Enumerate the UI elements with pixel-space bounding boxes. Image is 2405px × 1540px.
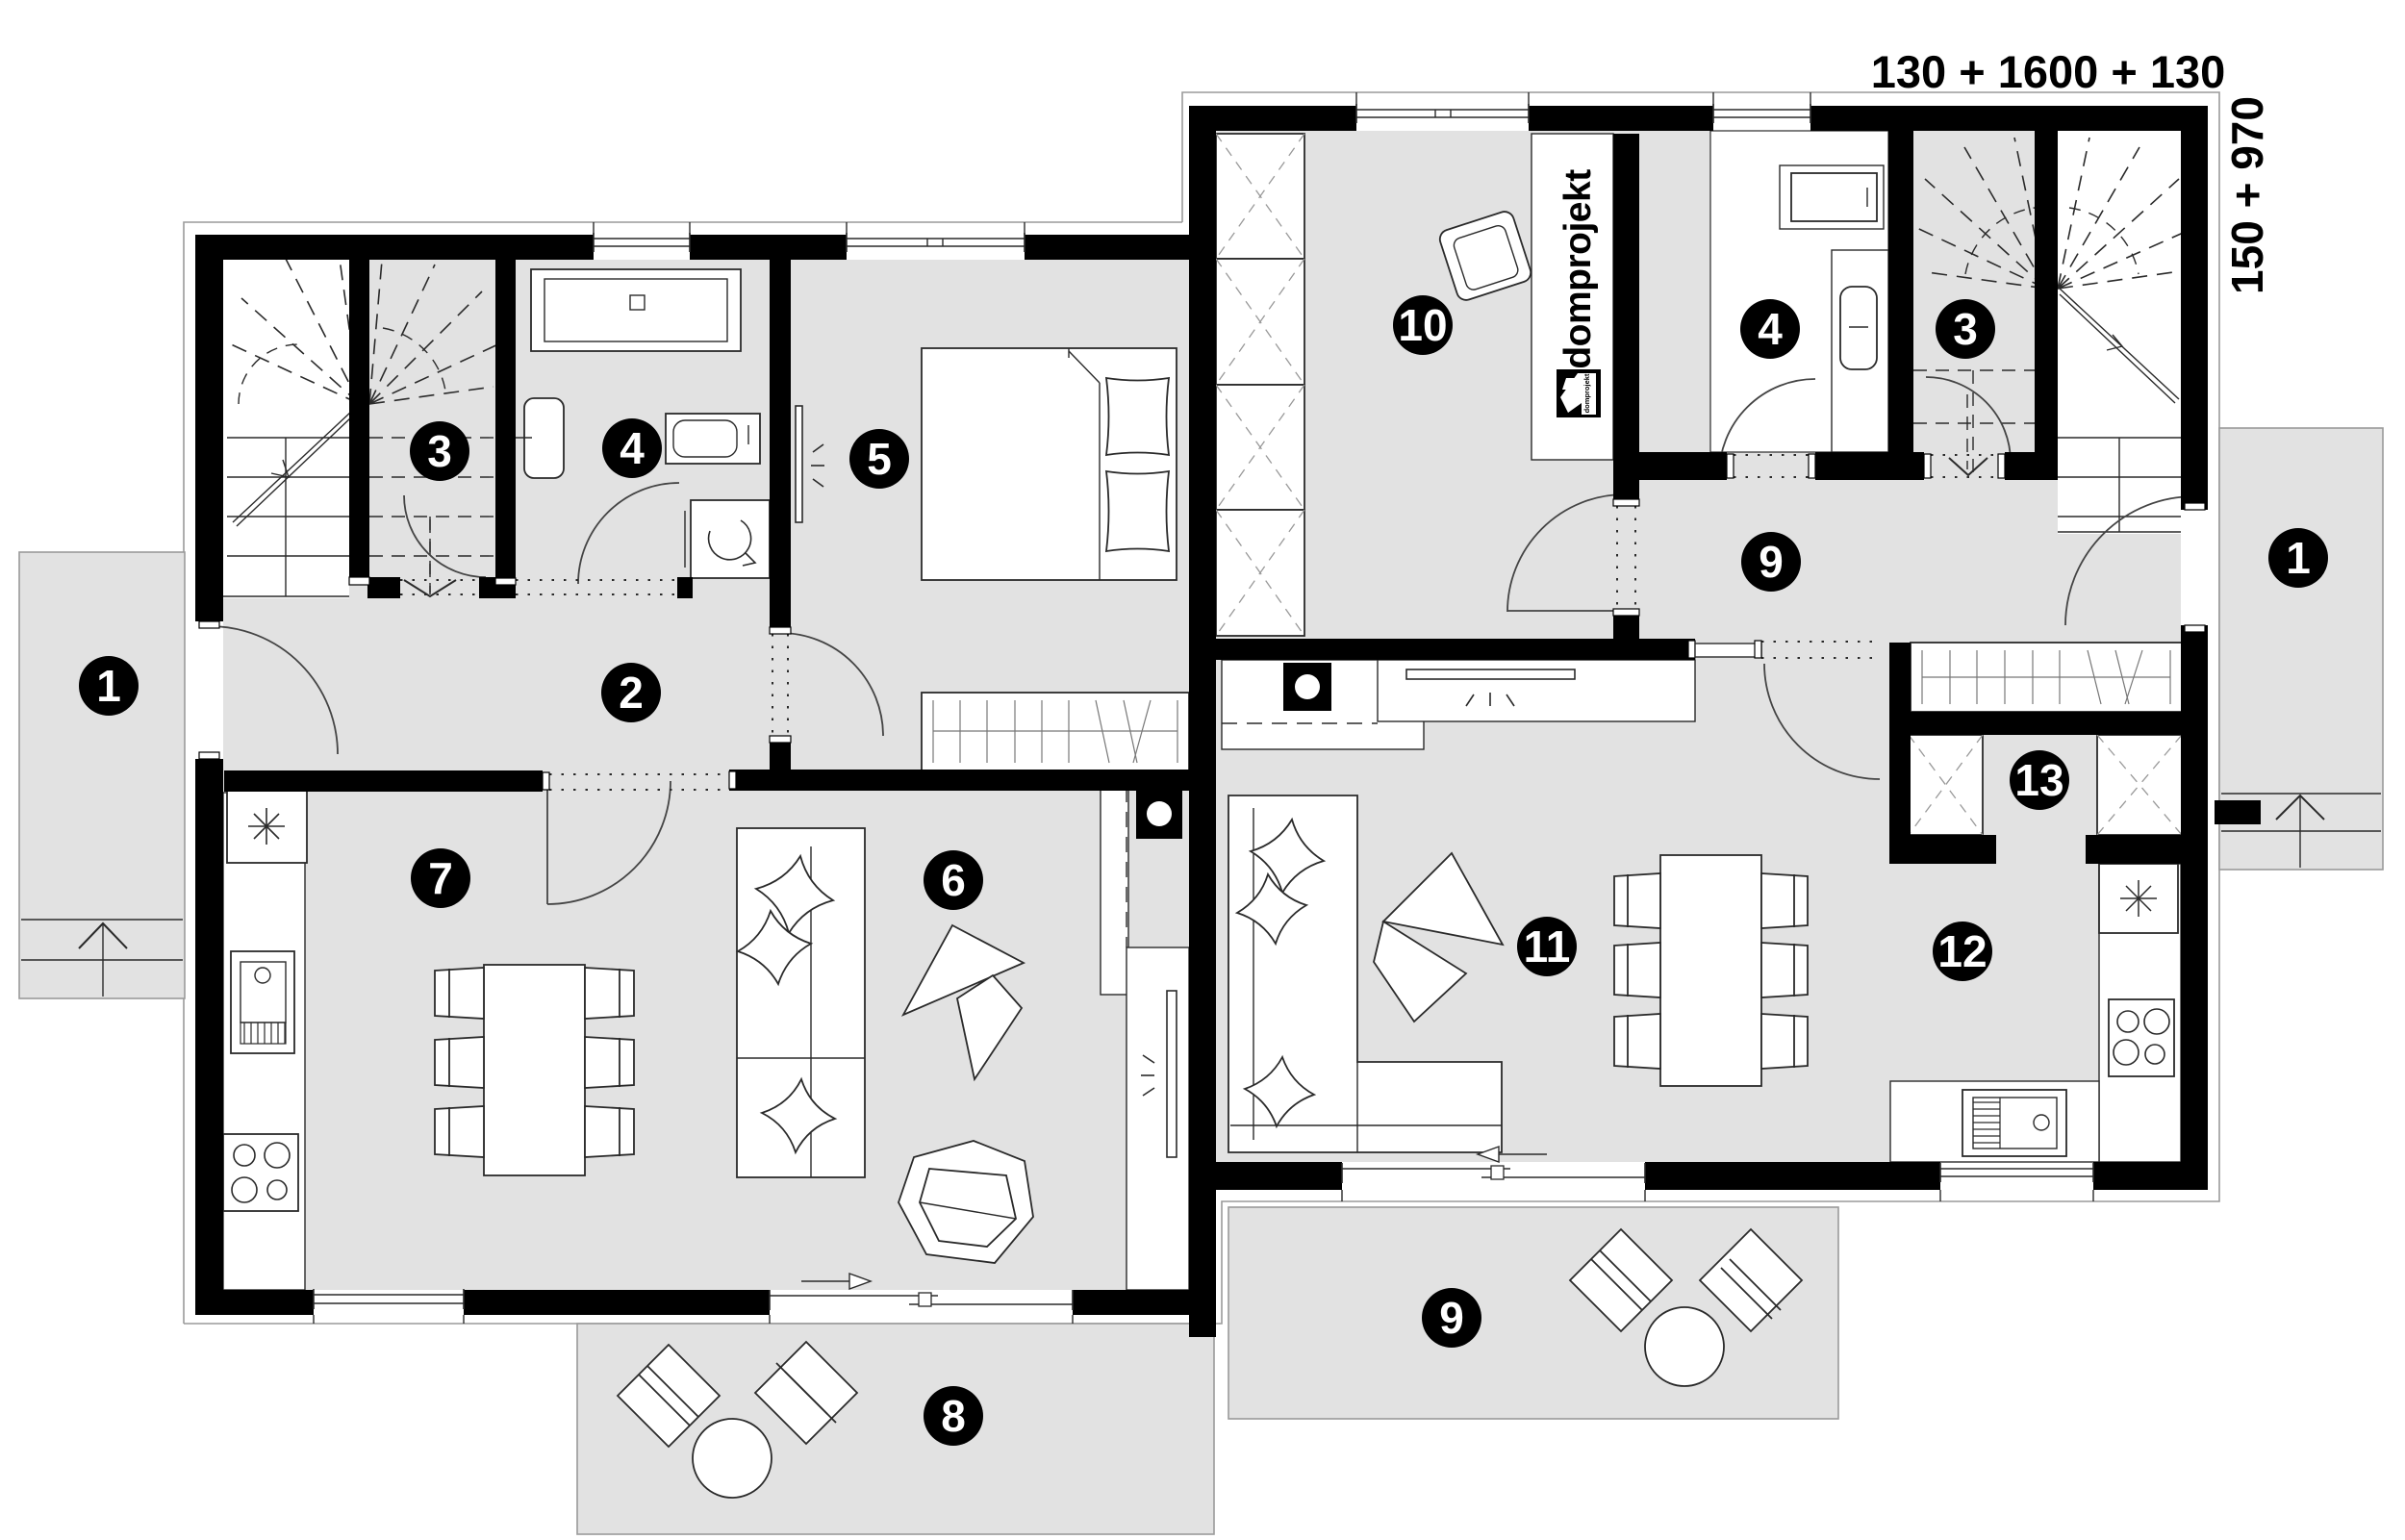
svg-text:domprojekt: domprojekt — [1557, 169, 1599, 369]
svg-text:2: 2 — [619, 668, 644, 718]
svg-text:4: 4 — [1758, 304, 1783, 354]
svg-text:9: 9 — [1439, 1293, 1464, 1343]
svg-text:9: 9 — [1759, 537, 1784, 587]
svg-text:150 + 970: 150 + 970 — [2222, 96, 2272, 294]
svg-text:3: 3 — [1953, 304, 1978, 354]
svg-text:7: 7 — [428, 853, 453, 903]
svg-text:3: 3 — [427, 426, 452, 476]
svg-text:domprojekt: domprojekt — [1582, 373, 1591, 413]
svg-text:10: 10 — [1398, 300, 1447, 350]
svg-text:130 + 1600 + 130: 130 + 1600 + 130 — [1871, 46, 2226, 97]
svg-text:5: 5 — [867, 434, 892, 484]
svg-text:1: 1 — [96, 661, 121, 711]
svg-text:13: 13 — [2014, 755, 2063, 805]
svg-text:6: 6 — [941, 855, 966, 905]
svg-text:8: 8 — [941, 1391, 966, 1441]
svg-text:1: 1 — [2286, 533, 2311, 583]
svg-text:4: 4 — [620, 423, 645, 473]
svg-text:11: 11 — [1524, 921, 1571, 972]
svg-text:12: 12 — [1937, 926, 1987, 976]
